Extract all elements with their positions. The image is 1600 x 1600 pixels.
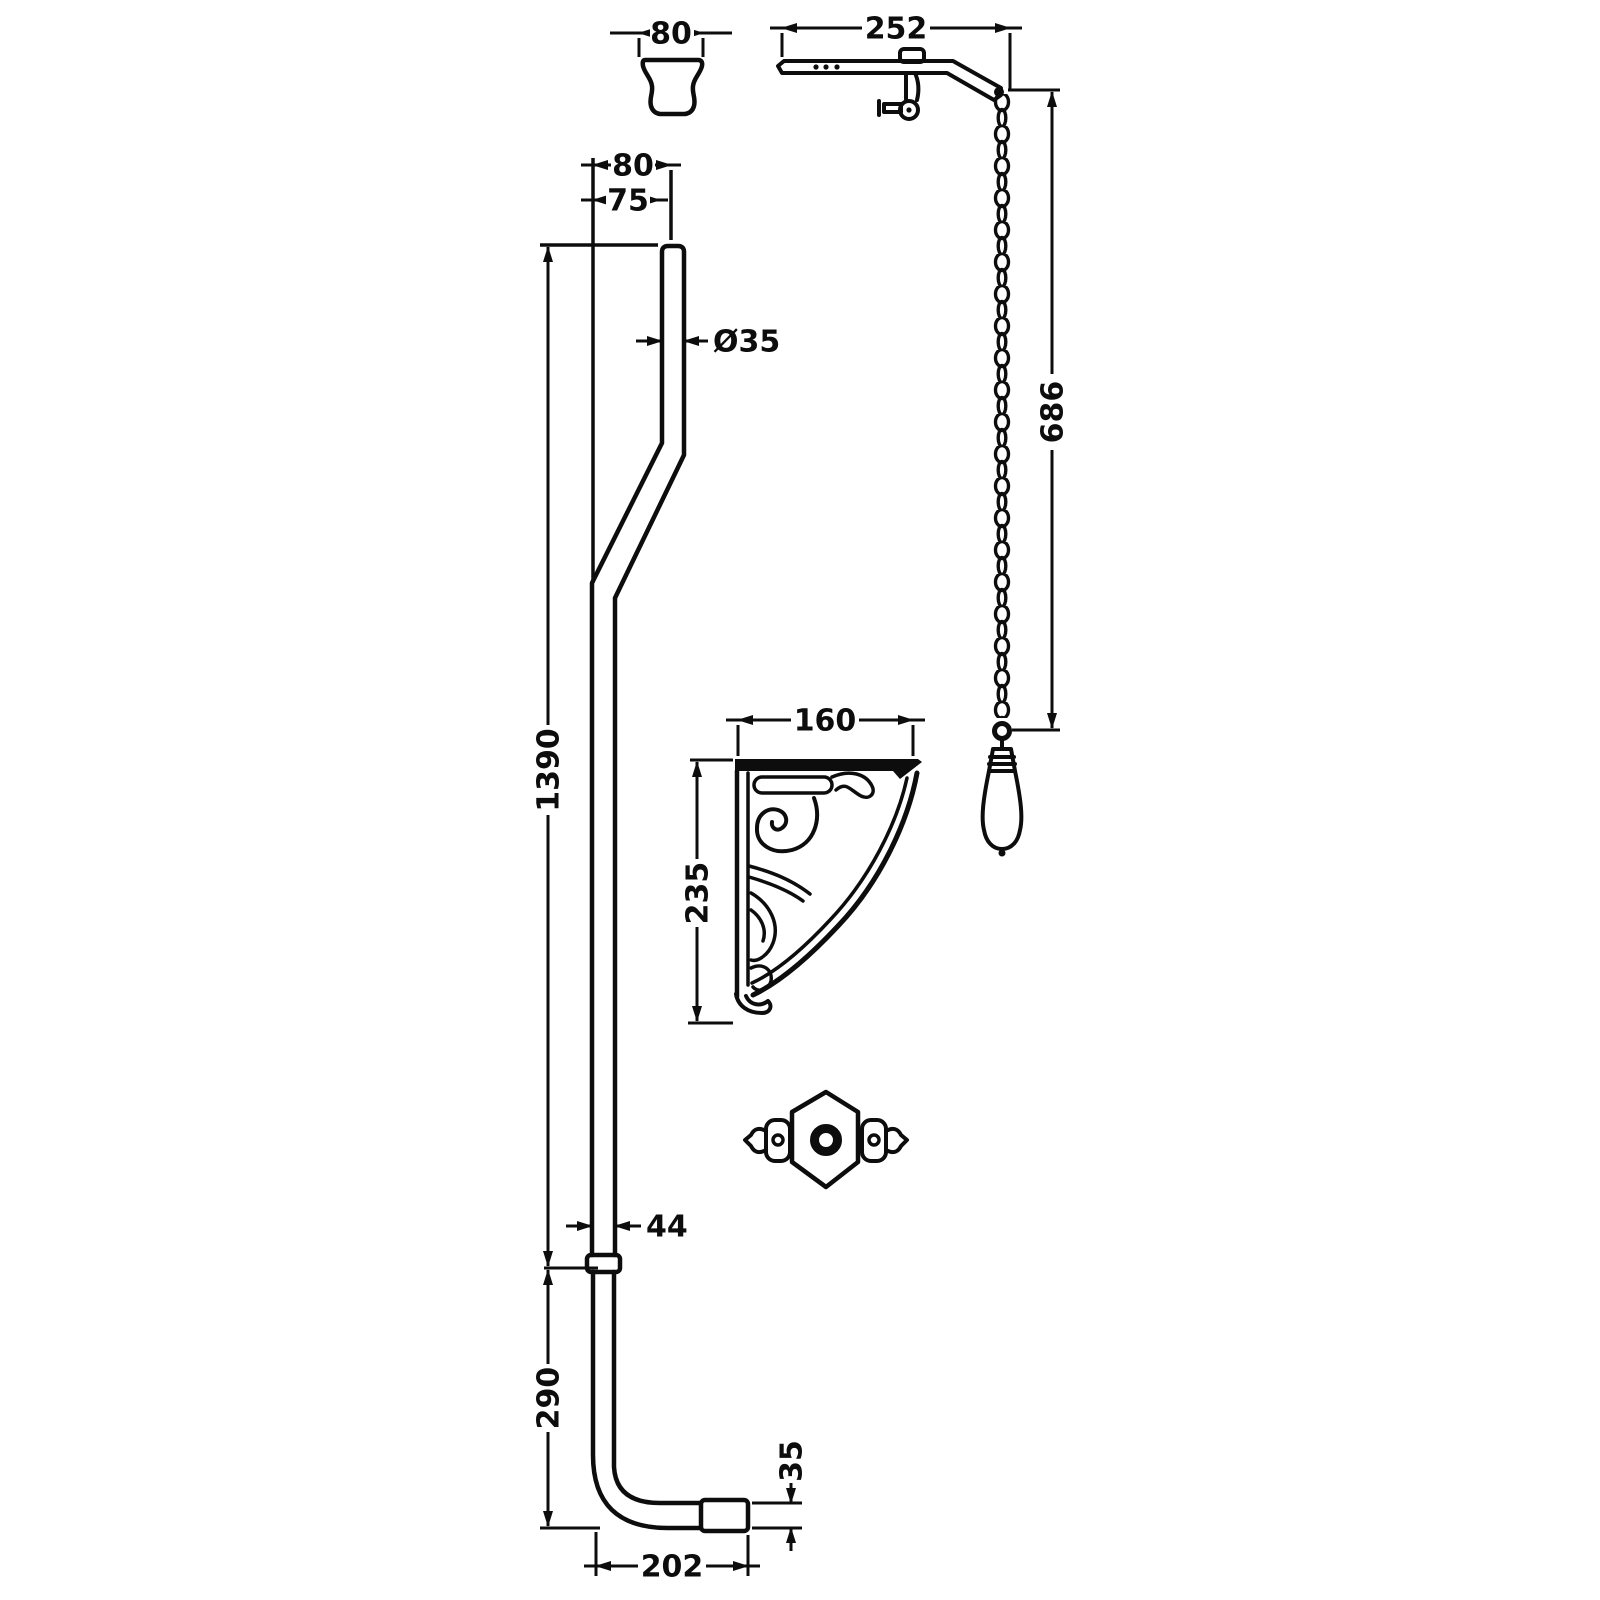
escutcheon-left-ear [766,1120,790,1161]
dim-bracket-height-labelgroup: 235 [680,859,716,927]
dim-chain-drop-label: 686 [1036,381,1071,444]
dim-upper-pipe-length-label: 1390 [532,728,567,812]
ornate-wall-bracket [735,759,922,1013]
dim-upper-pipe-length-labelgroup: 1390 [531,725,567,815]
drawing-canvas: 80 252 686 [0,0,1600,1600]
escutcheon-hexagon [792,1092,858,1187]
arm-clamp-tab [879,101,901,115]
pull-chain [992,94,1012,718]
bracket-spiral-scroll [757,798,817,851]
dim-top-offset-outer-label: 80 [612,149,654,184]
handle-tip [999,850,1006,857]
flush-pipe-outlet-coupling [701,1500,748,1531]
dim-top-offset-inner-label: 75 [607,184,649,219]
dim-outlet-diameter [752,1480,802,1551]
handle-ring [995,724,1010,739]
escutcheon-right-tip [886,1129,907,1152]
dim-bracket-height-label: 235 [681,862,716,925]
handle-collar [989,749,1015,771]
bracket-wave-scroll [832,773,873,797]
pan-connector-cone [643,60,702,114]
dim-lower-pipe-length-label: 290 [532,1367,567,1430]
ceramic-pull-handle [983,724,1022,857]
dim-cone-width-label: 80 [650,17,692,52]
dim-lower-pipe-length-labelgroup: 290 [531,1364,567,1432]
dim-outlet-diameter-labelgroup: 35 [774,1439,810,1483]
dim-chain-drop-labelgroup: 686 [1035,374,1071,450]
arm-clamp-cap [900,49,924,62]
cistern-lever-arm [778,49,1004,119]
dim-outlet-projection-label: 202 [641,1550,704,1585]
bracket-leaf [751,893,775,960]
bracket-slot [754,777,832,793]
escutcheon-right-ear [862,1120,886,1161]
flush-pipe [587,246,748,1531]
dim-pipe-diameter-label: Ø35 [713,325,780,360]
dim-arm-projection-label: 252 [865,12,928,47]
arm-clamp-body [906,73,918,100]
escutcheon-left-screw-hole [773,1135,783,1145]
technical-drawing: 80 252 686 [0,0,1600,1600]
pipe-clip-escutcheon [745,1092,907,1187]
escutcheon-left-tip [745,1129,766,1152]
dim-bracket-width-label: 160 [794,704,857,739]
handle-body [983,771,1022,849]
escutcheon-right-screw-hole [869,1135,879,1145]
dim-joint-diameter-label: 44 [646,1210,688,1245]
escutcheon-center-ring [815,1129,838,1152]
dim-outlet-diameter-label: 35 [775,1440,810,1482]
